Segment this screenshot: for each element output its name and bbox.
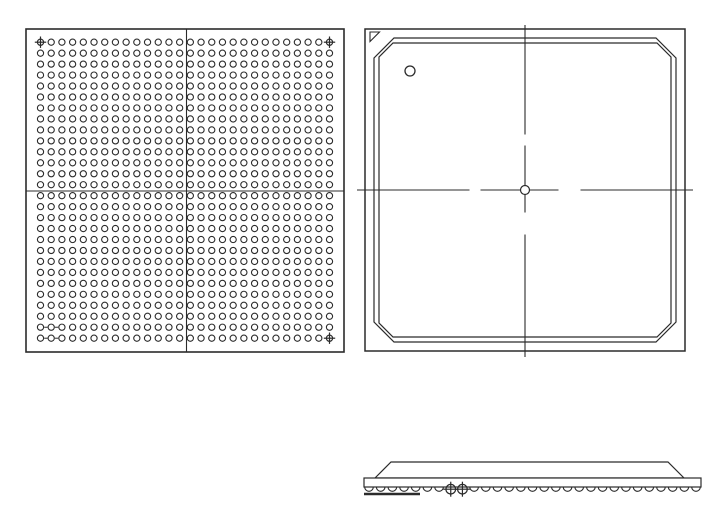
side-solder-ball <box>493 487 502 491</box>
side-solder-ball <box>517 487 526 491</box>
side-solder-ball <box>645 487 654 491</box>
side-solder-ball <box>528 487 537 491</box>
side-solder-ball <box>365 487 374 491</box>
side-solder-ball <box>411 487 420 491</box>
side-solder-ball <box>680 487 689 491</box>
side-solder-ball <box>481 487 490 491</box>
top-view <box>357 25 693 357</box>
side-solder-ball <box>540 487 549 491</box>
package-drawing <box>0 0 705 505</box>
side-solder-ball <box>423 487 432 491</box>
side-solder-ball <box>610 487 619 491</box>
side-solder-ball <box>692 487 701 491</box>
side-solder-ball <box>657 487 666 491</box>
side-solder-ball <box>622 487 631 491</box>
side-solder-ball <box>388 487 397 491</box>
side-solder-ball <box>376 487 385 491</box>
side-solder-ball <box>552 487 561 491</box>
side-solder-ball <box>505 487 514 491</box>
package-drawing-canvas <box>0 0 705 505</box>
lid-profile <box>375 462 684 478</box>
side-solder-ball <box>435 487 444 491</box>
substrate-profile <box>364 478 701 487</box>
side-solder-ball <box>668 487 677 491</box>
side-solder-ball <box>598 487 607 491</box>
bottom-view <box>26 29 344 352</box>
side-solder-ball <box>575 487 584 491</box>
side-solder-ball <box>563 487 572 491</box>
side-solder-ball <box>633 487 642 491</box>
side-solder-ball <box>470 487 479 491</box>
side-view <box>364 462 701 497</box>
side-solder-ball <box>587 487 596 491</box>
side-solder-ball <box>400 487 409 491</box>
